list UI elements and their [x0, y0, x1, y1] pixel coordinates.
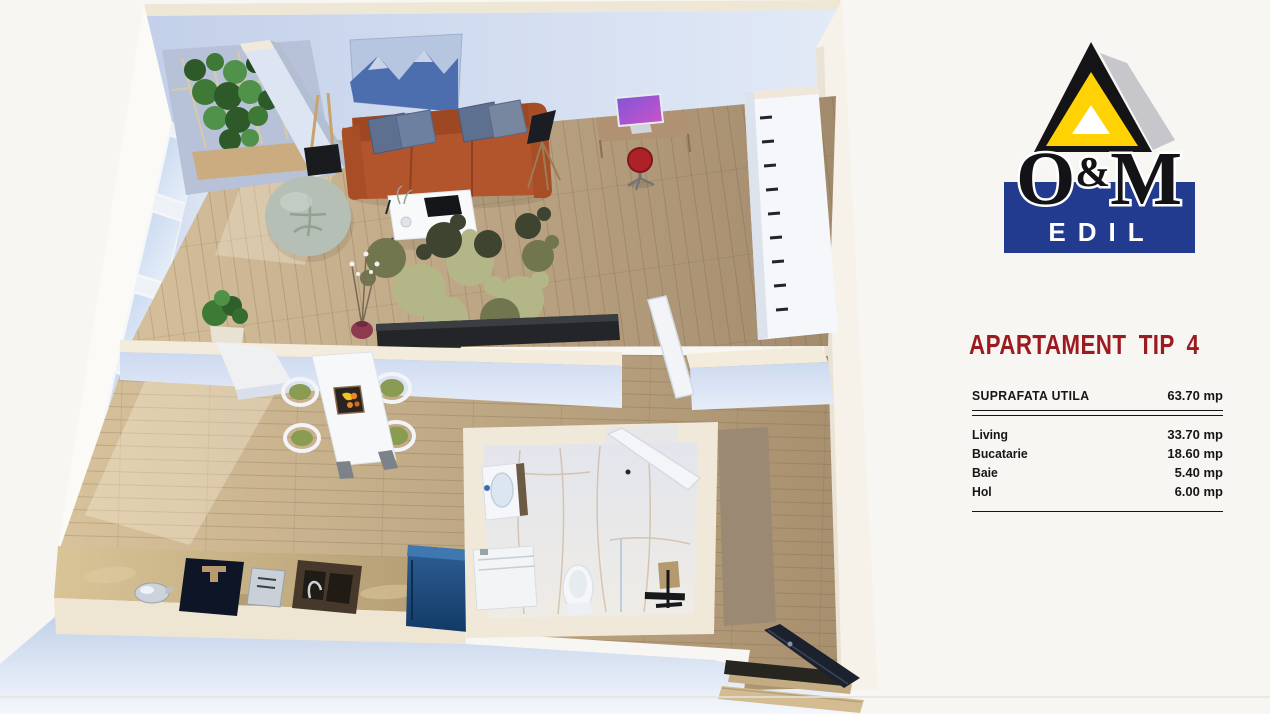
toaster — [247, 568, 285, 607]
fridge — [406, 545, 470, 632]
cooktop — [179, 558, 244, 616]
hall-runner — [718, 427, 776, 626]
room-label: Bucatarie — [972, 444, 1028, 463]
apartment-title: APARTAMENT TIP 4 — [969, 329, 1199, 361]
room-label: Baie — [972, 463, 998, 482]
single-rule — [972, 511, 1223, 512]
room-row-baie: Baie 5.40 mp — [972, 463, 1223, 482]
toilet — [563, 565, 593, 616]
room-row-living: Living 33.70 mp — [972, 425, 1223, 444]
om-edil-logo: EDIL O&M — [1002, 28, 1198, 260]
logo: EDIL O&M — [1002, 28, 1198, 260]
logo-edil-text: EDIL — [1048, 217, 1155, 247]
room-value: 18.60 mp — [1167, 444, 1223, 463]
kitchen-sink — [292, 560, 362, 614]
wall-art — [350, 34, 462, 112]
washing-machine — [473, 546, 537, 610]
room-row-bucatarie: Bucatarie 18.60 mp — [972, 444, 1223, 463]
area-table: SUPRAFATA UTILA 63.70 mp Living 33.70 mp… — [972, 386, 1223, 512]
apartment-presentation: EDIL O&M APARTAMENT TIP 4 SUPRAFATA UTIL… — [0, 0, 1270, 714]
room-label: Hol — [972, 482, 992, 501]
room-value: 5.40 mp — [1175, 463, 1223, 482]
double-rule — [972, 410, 1223, 416]
room-label: Living — [972, 425, 1008, 444]
bathroom — [463, 422, 718, 638]
laptop — [424, 195, 462, 217]
fruit-tray — [334, 386, 364, 414]
room-value: 33.70 mp — [1167, 425, 1223, 444]
kitchen-counter — [54, 545, 470, 644]
total-area-value: 63.70 mp — [1167, 386, 1223, 405]
bathroom-vanity — [482, 463, 528, 520]
room-value: 6.00 mp — [1175, 482, 1223, 501]
total-area-row: SUPRAFATA UTILA 63.70 mp — [972, 386, 1223, 405]
total-area-label: SUPRAFATA UTILA — [972, 386, 1089, 405]
room-row-hol: Hol 6.00 mp — [972, 482, 1223, 501]
